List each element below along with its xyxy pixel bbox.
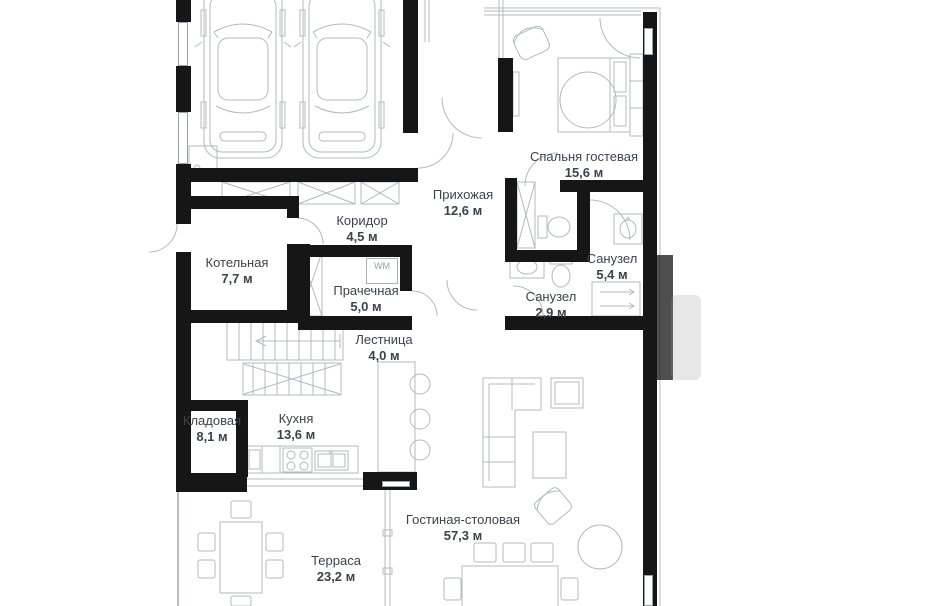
wall-segment (310, 245, 412, 257)
stove-icon (283, 448, 312, 472)
bed-icon (558, 54, 643, 136)
wall-segment (400, 245, 412, 291)
room-label-boiler: Котельная 7,7 м (206, 255, 269, 287)
wall-segment (643, 12, 657, 606)
sliding-door-line (247, 479, 392, 606)
room-label-laundry: Прачечная 5,0 м (333, 283, 398, 315)
room-name: Лестница (355, 332, 412, 348)
living-rug (578, 525, 622, 569)
bedroom-rug (560, 72, 616, 128)
dining-table-icon (444, 543, 578, 606)
stairs-icon (227, 322, 343, 395)
room-label-storage: Кладовая 8,1 м (183, 413, 241, 445)
coffee-table-icon (533, 432, 566, 478)
watermark-fragment (671, 295, 701, 380)
wall-segment (176, 66, 191, 112)
room-name: Спальня гостевая (530, 149, 638, 165)
washing-machine-label: WM (374, 261, 390, 271)
wall-segment (505, 178, 517, 250)
sofa-icon (483, 378, 541, 487)
window (178, 112, 188, 164)
room-label-living: Гостиная-столовая 57,3 м (406, 512, 520, 544)
room-label-kitchen: Кухня 13,6 м (277, 411, 316, 443)
armchair-icon (551, 378, 583, 408)
room-label-bath-large: Санузел 5,4 м (587, 251, 638, 283)
floor-plan: Спальня гостевая 15,6 м Прихожая 12,6 м … (0, 0, 926, 606)
window (178, 22, 188, 66)
wall-segment (577, 192, 590, 250)
room-label-corridor: Коридор 4,5 м (336, 213, 387, 245)
kitchen-sink-icon (315, 451, 348, 470)
car-icon (294, 0, 390, 158)
wall-niche (382, 481, 410, 487)
room-label-stairs: Лестница 4,0 м (355, 332, 412, 364)
room-label-terrace: Терраса 23,2 м (311, 553, 361, 585)
toilet-icon (538, 216, 570, 238)
sink-icon (614, 214, 642, 244)
wall-segment (287, 196, 299, 218)
wall-segment (403, 0, 418, 133)
room-area: 23,2 м (311, 569, 361, 585)
room-area: 5,0 м (333, 299, 398, 315)
towel-rail-icon (592, 282, 640, 316)
wall-segment (190, 168, 418, 182)
washing-machine-icon: WM (366, 258, 398, 284)
room-area: 5,4 м (587, 267, 638, 283)
room-name: Прихожая (433, 187, 493, 203)
wall-segment (298, 316, 412, 330)
entry-line (425, 0, 503, 58)
room-name: Котельная (206, 255, 269, 271)
wall-segment (188, 196, 299, 209)
bar-stool-icon (410, 374, 430, 460)
wall-segment (498, 58, 513, 132)
wall-segment (505, 250, 590, 262)
kitchen-counter-icon (247, 446, 358, 473)
wall-segment (188, 310, 299, 323)
room-name: Санузел (526, 289, 577, 305)
wall-segment (560, 180, 643, 192)
room-area: 13,6 м (277, 427, 316, 443)
room-area: 57,3 м (406, 528, 520, 544)
room-label-hallway: Прихожая 12,6 м (433, 187, 493, 219)
room-name: Прачечная (333, 283, 398, 299)
lounge-chair-icon (533, 486, 574, 527)
kitchen-island-icon (378, 362, 415, 472)
room-name: Кладовая (183, 413, 241, 429)
room-label-bedroom: Спальня гостевая 15,6 м (530, 149, 638, 181)
room-area: 2,9 м (526, 305, 577, 321)
room-label-bath-small: Санузел 2,9 м (526, 289, 577, 321)
wall-segment (287, 244, 310, 323)
room-area: 15,6 м (530, 165, 638, 181)
room-area: 12,6 м (433, 203, 493, 219)
room-name: Кухня (277, 411, 316, 427)
window (644, 575, 653, 606)
room-name: Гостиная-столовая (406, 512, 520, 528)
wall-segment (176, 0, 191, 22)
room-name: Коридор (336, 213, 387, 229)
wall-segment (176, 164, 191, 224)
room-area: 7,7 м (206, 271, 269, 287)
room-name: Санузел (587, 251, 638, 267)
terrace-wall-line (177, 492, 179, 606)
terrace-table-icon (198, 501, 283, 606)
room-name: Терраса (311, 553, 361, 569)
window (644, 28, 653, 55)
car-icon (195, 0, 291, 158)
room-area: 8,1 м (183, 429, 241, 445)
room-area: 4,0 м (355, 348, 412, 364)
armchair-icon (511, 23, 552, 62)
room-area: 4,5 м (336, 229, 387, 245)
